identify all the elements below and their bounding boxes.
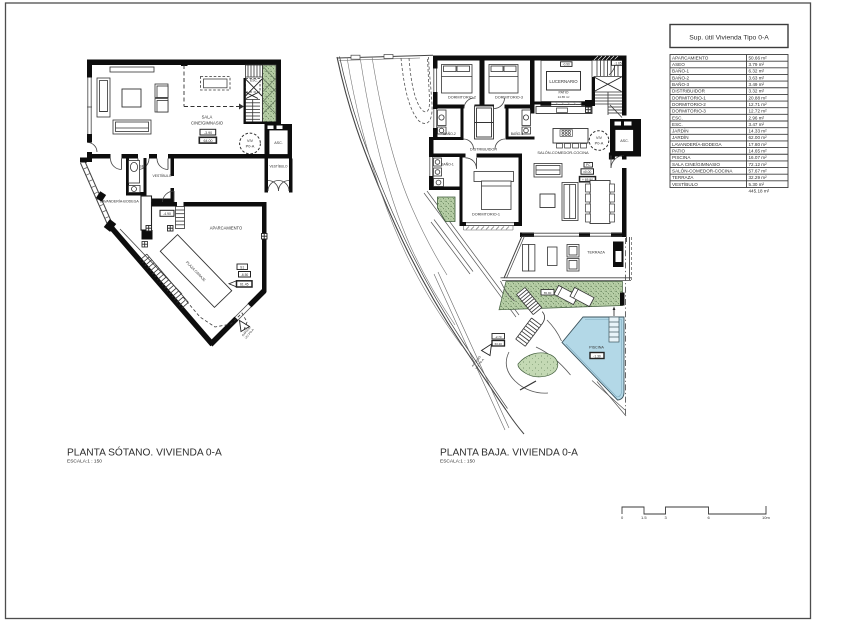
svg-text:-0.90: -0.90 <box>563 63 570 67</box>
svg-text:BAÑO-3: BAÑO-3 <box>511 131 524 136</box>
svg-text:P0-A: P0-A <box>246 144 255 149</box>
svg-text:PC: PC <box>586 163 591 167</box>
svg-text:PISCINA: PISCINA <box>672 155 691 160</box>
svg-text:DORMITORIO-1: DORMITORIO-1 <box>672 95 706 100</box>
svg-text:BAÑO-3: BAÑO-3 <box>672 81 690 87</box>
svg-text:SALA CINE/GIMNASIO: SALA CINE/GIMNASIO <box>672 162 720 167</box>
svg-text:SALA: SALA <box>202 115 213 120</box>
svg-text:445.18 m²: 445.18 m² <box>749 189 770 194</box>
svg-text:63.20: 63.20 <box>495 342 503 346</box>
svg-text:57.67 m²: 57.67 m² <box>749 168 768 173</box>
svg-text:-1.65: -1.65 <box>614 61 621 65</box>
svg-text:PATIO: PATIO <box>672 149 686 154</box>
svg-text:LUCERNARIO: LUCERNARIO <box>549 79 578 84</box>
svg-text:BAÑO-2: BAÑO-2 <box>672 74 690 80</box>
svg-text:ESC.: ESC. <box>250 79 258 83</box>
svg-text:2.96 m²: 2.96 m² <box>749 115 765 120</box>
svg-text:DORMITORIO-3: DORMITORIO-3 <box>495 96 523 100</box>
svg-text:-3.90: -3.90 <box>204 131 212 135</box>
svg-text:±0.00: ±0.00 <box>583 170 591 174</box>
svg-text:16.07 m²: 16.07 m² <box>749 155 768 160</box>
svg-text:12.72 m²: 12.72 m² <box>749 109 768 114</box>
svg-text:ASC.: ASC. <box>620 139 629 143</box>
svg-text:APARCAMIENTO: APARCAMIENTO <box>672 55 709 60</box>
svg-text:BAÑO-2: BAÑO-2 <box>443 131 456 136</box>
svg-text:-2.70: -2.70 <box>495 335 502 339</box>
svg-text:VESTÍBULO: VESTÍBULO <box>152 174 171 178</box>
svg-text:S1: S1 <box>240 265 244 269</box>
svg-text:BAÑO-1: BAÑO-1 <box>441 162 454 167</box>
svg-text:14.65 m²: 14.65 m² <box>558 95 570 99</box>
svg-text:DISTRIBUIDOR: DISTRIBUIDOR <box>470 148 497 152</box>
svg-text:VIV: VIV <box>596 135 603 140</box>
svg-text:CINE/GIMNASIO: CINE/GIMNASIO <box>191 121 224 126</box>
svg-text:VESTÍBULO: VESTÍBULO <box>672 181 698 187</box>
svg-text:JARDÍN: JARDÍN <box>672 134 689 140</box>
svg-text:72.12 m²: 72.12 m² <box>749 162 768 167</box>
svg-text:ASC.: ASC. <box>274 141 283 145</box>
svg-text:TERRAZA: TERRAZA <box>587 251 605 255</box>
svg-text:ESCALA:1 : 150: ESCALA:1 : 150 <box>440 459 475 465</box>
svg-text:62.00 m²: 62.00 m² <box>749 135 768 140</box>
svg-text:ESC.: ESC. <box>672 115 683 120</box>
svg-text:PLANTA SÓTANO. VIVIENDA 0-A: PLANTA SÓTANO. VIVIENDA 0-A <box>67 446 222 459</box>
svg-text:LAVANDERÍA-BODEGA: LAVANDERÍA-BODEGA <box>672 141 723 147</box>
svg-text:1.5: 1.5 <box>641 515 647 520</box>
svg-text:-1.30: -1.30 <box>593 354 601 358</box>
svg-text:-6.50: -6.50 <box>241 273 249 277</box>
svg-text:ASEO: ASEO <box>672 62 685 67</box>
svg-text:DORMITORIO-3: DORMITORIO-3 <box>672 109 706 114</box>
svg-text:VESTÍBULO: VESTÍBULO <box>270 165 288 169</box>
svg-text:3.49 m²: 3.49 m² <box>749 82 765 87</box>
svg-text:-4.90: -4.90 <box>163 212 171 216</box>
svg-text:BAÑO-1: BAÑO-1 <box>672 68 690 74</box>
svg-text:VIV: VIV <box>247 138 254 143</box>
svg-text:14.65 m²: 14.65 m² <box>749 149 768 154</box>
svg-text:JARDÍN: JARDÍN <box>672 128 689 134</box>
svg-text:3.32 m²: 3.32 m² <box>749 89 765 94</box>
svg-text:3.79 m²: 3.79 m² <box>749 62 765 67</box>
svg-text:3.63 m²: 3.63 m² <box>749 75 765 80</box>
svg-text:DORMITORIO-1: DORMITORIO-1 <box>472 213 500 217</box>
svg-text:20.88 m²: 20.88 m² <box>749 95 768 100</box>
svg-text:50.66 m²: 50.66 m² <box>749 55 768 60</box>
svg-text:64.00: 64.00 <box>204 139 213 143</box>
svg-text:DISTRIBUIDOR: DISTRIBUIDOR <box>672 89 706 94</box>
svg-text:APARCAMIENTO: APARCAMIENTO <box>210 226 242 231</box>
svg-text:SALÓN-COMEDOR-COCINA: SALÓN-COMEDOR-COCINA <box>672 167 733 173</box>
svg-text:6.32 m²: 6.32 m² <box>749 69 765 74</box>
svg-text:Sup. útil Vivienda Tipo 0-A: Sup. útil Vivienda Tipo 0-A <box>689 35 769 42</box>
svg-text:P0-A: P0-A <box>595 141 604 146</box>
svg-text:10m: 10m <box>762 515 770 520</box>
svg-text:PISCINA: PISCINA <box>589 346 604 350</box>
svg-text:DORMITORIO-2: DORMITORIO-2 <box>672 102 706 107</box>
svg-text:12.71 m²: 12.71 m² <box>749 102 768 107</box>
svg-text:32.29 m²: 32.29 m² <box>749 175 768 180</box>
svg-text:17.80 m²: 17.80 m² <box>749 142 768 147</box>
svg-text:65.90: 65.90 <box>544 291 552 295</box>
svg-text:PLANTA BAJA. VIVIENDA 0-A: PLANTA BAJA. VIVIENDA 0-A <box>440 448 578 459</box>
svg-text:DORMITORIO-2: DORMITORIO-2 <box>448 96 476 100</box>
svg-text:5.30 m²: 5.30 m² <box>749 182 765 187</box>
svg-text:3.47 m²: 3.47 m² <box>749 122 765 127</box>
svg-text:ESCALA:1 : 150: ESCALA:1 : 150 <box>67 459 102 465</box>
svg-text:SALÓN-COMEDOR-COCINA: SALÓN-COMEDOR-COCINA <box>537 150 589 155</box>
svg-text:14.33 m²: 14.33 m² <box>749 129 768 134</box>
svg-text:ESC.: ESC. <box>672 122 683 127</box>
svg-text:LAVANDERÍA-BODEGA: LAVANDERÍA-BODEGA <box>100 200 139 204</box>
svg-text:61.45: 61.45 <box>240 283 249 287</box>
svg-text:TERRAZA: TERRAZA <box>672 175 694 180</box>
